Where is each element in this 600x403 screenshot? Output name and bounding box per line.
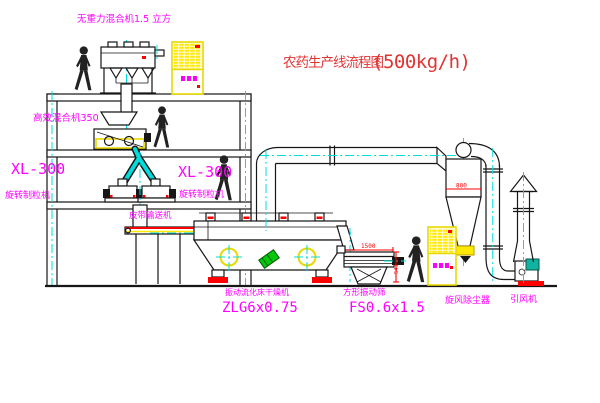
label-high-eff-mixer: 高效混合机350 (33, 112, 99, 124)
page-title: 农药生产线流程图 (283, 55, 383, 71)
label-belt-conveyor: 皮带输送机 (129, 210, 172, 221)
label-gravity-mixer: 无重力混合机1.5 立方 (77, 13, 171, 25)
label-granulator-right-model: XL-300 (178, 163, 232, 181)
dim-screen-length: 1500 (361, 243, 376, 250)
label-fan: 引风机 (510, 293, 537, 305)
label-screen-name: 方形振动筛 (343, 287, 386, 298)
diagram-canvas: 无重力混合机1.5 立方 农药生产线流程图 (500kg/h) 高效混合机350… (0, 0, 600, 403)
high-efficiency-mixer (94, 112, 151, 149)
control-cabinet-roof (172, 42, 203, 94)
indicator-knobs (181, 76, 197, 81)
cad-flow-diagram: 无重力混合机1.5 立方 农药生产线流程图 (500kg/h) 高效混合机350… (0, 0, 600, 403)
label-screen-model: FS0.6x1.5 (349, 300, 425, 316)
page-title-capacity: (500kg/h) (372, 51, 470, 73)
control-cabinet-ground (428, 227, 456, 285)
dryer-air-stubs (206, 213, 324, 221)
rotary-granulator-right (138, 179, 176, 202)
person-figure (75, 46, 92, 90)
dim-cyclone-outlet: 800 (456, 183, 467, 190)
label-cyclone: 旋风除尘器 (445, 294, 490, 306)
belt-conveyor (125, 227, 203, 284)
person-figure (407, 236, 424, 282)
label-dryer-model: ZLG6x0.75 (222, 300, 298, 316)
label-granulator-left-model: XL-300 (11, 160, 65, 178)
label-dryer-name: 振动流化床干燥机 (225, 287, 289, 297)
label-granulator-left-name: 旋转制粒机 (5, 189, 50, 201)
indicator-knobs (433, 263, 449, 268)
induced-draft-fan (515, 259, 544, 286)
dim-screen-height: 541 (394, 264, 400, 274)
rotary-granulator-left (103, 179, 143, 202)
label-granulator-right-name: 旋转制粒机 (179, 188, 224, 200)
feed-chute-roof (121, 84, 132, 113)
person-figure (154, 106, 170, 147)
